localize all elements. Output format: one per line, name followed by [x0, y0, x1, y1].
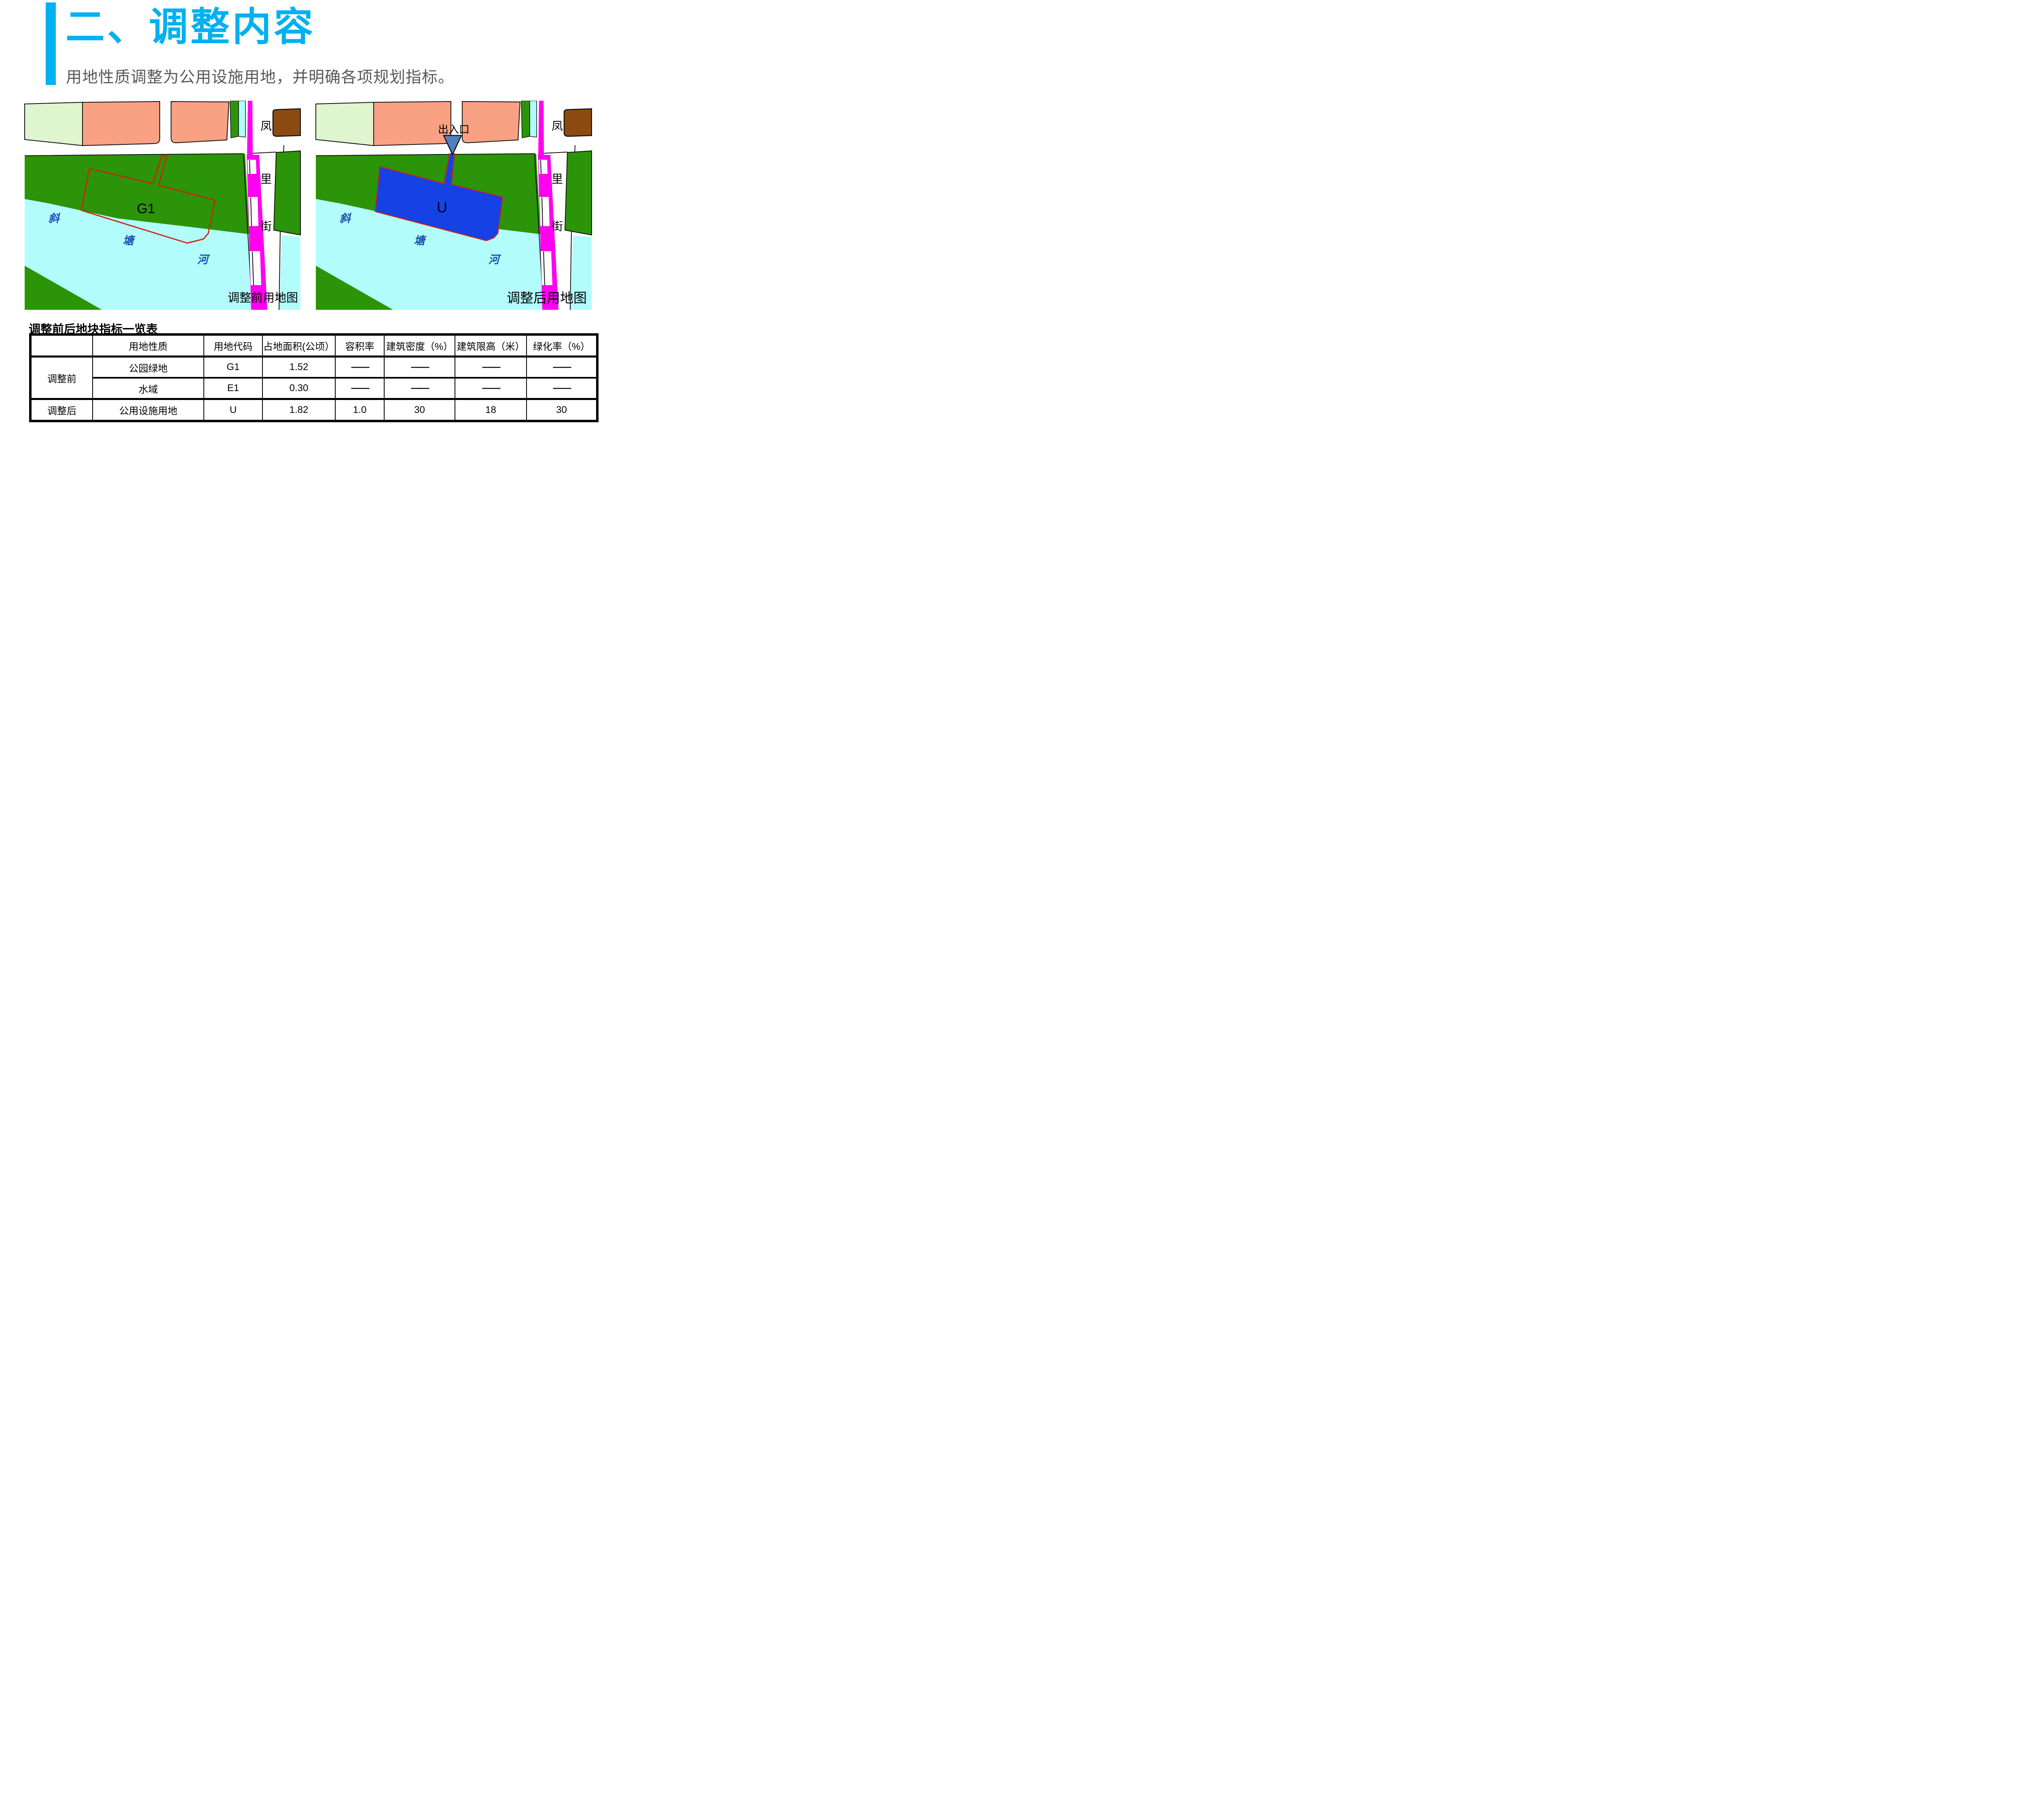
cell-far: —— [335, 378, 384, 399]
verge-green-strip [230, 101, 239, 138]
table-row: 调整后 公用设施用地 U 1.82 1.0 30 18 30 [30, 399, 597, 421]
header-height-limit: 建筑限高（米） [455, 334, 527, 357]
east-green-parcel [565, 151, 592, 235]
header-density: 建筑密度（%） [384, 334, 455, 357]
magenta-road-median-top [538, 101, 544, 155]
verge-cyan-strip [239, 101, 245, 137]
cell-far: —— [335, 357, 384, 378]
row-group-before: 调整前 [30, 357, 93, 399]
street-char-li: 里 [552, 173, 563, 185]
cell-land-use: 公园绿地 [93, 357, 204, 378]
cell-land-use: 水域 [93, 378, 204, 399]
cell-land-code: U [204, 399, 262, 421]
table-row: 调整前 公园绿地 G1 1.52 —— —— —— —— [30, 357, 597, 378]
road-dash-gap-3 [250, 251, 261, 285]
title-accent-bar [46, 2, 56, 85]
pale-green-parcel [316, 102, 374, 146]
east-green-parcel [274, 151, 300, 235]
page-title: 二、调整内容 [66, 6, 315, 49]
header-land-use: 用地性质 [93, 334, 204, 357]
river-char-xie: 斜 [340, 212, 352, 224]
river-char-xie: 斜 [49, 212, 61, 224]
verge-cyan-strip [530, 101, 537, 137]
cell-area: 1.82 [262, 399, 335, 421]
table-header-row: 用地性质 用地代码 占地面积(公顷） 容积率 建筑密度（%） 建筑限高（米） 绿… [30, 334, 597, 357]
road-dash-gap-1 [539, 160, 548, 174]
row-group-after: 调整后 [30, 399, 93, 421]
verge-green-strip [521, 101, 530, 138]
entrance-label: 出入口 [438, 123, 470, 135]
road-dash-gap-1 [247, 160, 256, 174]
cell-area: 0.30 [262, 378, 335, 399]
indicator-table: 用地性质 用地代码 占地面积(公顷） 容积率 建筑密度（%） 建筑限高（米） 绿… [29, 333, 599, 422]
street-char-feng: 凤 [260, 120, 272, 132]
salmon-parcel-2 [171, 102, 229, 143]
magenta-road-median-top [247, 101, 253, 155]
cell-density: 30 [384, 399, 455, 421]
lane-line-1 [541, 160, 541, 174]
salmon-parcel-1 [82, 102, 160, 146]
lane-line-1 [250, 160, 250, 174]
slide: 二、调整内容 用地性质调整为公用设施用地，并明确各项规划指标。 [0, 0, 607, 455]
header-land-code: 用地代码 [204, 334, 262, 357]
land-use-map-after: 出入口 U 凤 里 街 斜 塘 河 调整后用地图 [315, 101, 592, 310]
cell-green-rate: —— [527, 357, 597, 378]
cell-density: —— [384, 378, 455, 399]
cell-land-code: G1 [204, 357, 262, 378]
street-char-jie: 街 [552, 220, 563, 233]
table-row: 水域 E1 0.30 —— —— —— —— [30, 378, 597, 399]
brown-parcel [273, 109, 300, 136]
plot-label-g1: G1 [137, 201, 155, 216]
cell-land-use: 公用设施用地 [93, 399, 204, 421]
cell-far: 1.0 [335, 399, 384, 421]
cell-height-limit: —— [455, 378, 527, 399]
road-dash-gap-2 [539, 197, 550, 226]
cell-height-limit: 18 [455, 399, 527, 421]
page-subtitle: 用地性质调整为公用设施用地，并明确各项规划指标。 [66, 65, 454, 87]
header-blank [30, 334, 93, 357]
cell-density: —— [384, 357, 455, 378]
salmon-parcel-2 [462, 102, 520, 143]
land-use-map-before: G1 凤 里 街 斜 塘 河 调整前用地图 [24, 101, 301, 310]
road-dash-gap-2 [248, 197, 258, 226]
map-caption-after: 调整后用地图 [507, 290, 587, 305]
cell-height-limit: —— [455, 357, 527, 378]
header-green-rate: 绿化率（%） [527, 334, 597, 357]
pale-green-parcel [25, 102, 82, 146]
street-char-feng: 凤 [552, 120, 563, 132]
plot-label-u: U [437, 199, 447, 216]
street-char-li: 里 [260, 173, 272, 185]
cell-area: 1.52 [262, 357, 335, 378]
header-area: 占地面积(公顷） [262, 334, 335, 357]
road-dash-gap-3 [541, 251, 552, 285]
header-far: 容积率 [335, 334, 384, 357]
cell-green-rate: —— [527, 378, 597, 399]
street-char-jie: 街 [260, 220, 272, 233]
cell-land-code: E1 [204, 378, 262, 399]
entrance-marker-icon [444, 135, 461, 154]
map-caption-before: 调整前用地图 [228, 291, 298, 305]
brown-parcel [564, 109, 592, 136]
cell-green-rate: 30 [527, 399, 597, 421]
